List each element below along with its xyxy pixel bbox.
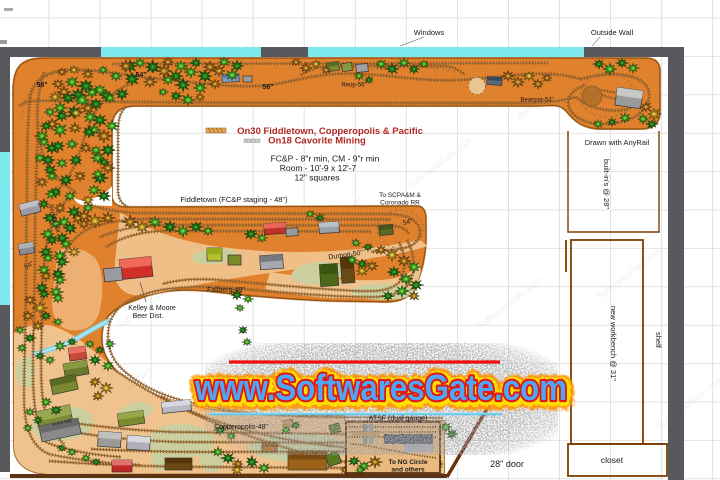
svg-text:On18 Cavorite Mining: On18 Cavorite Mining bbox=[268, 136, 366, 147]
svg-text:Kelley & Moore: Kelley & Moore bbox=[128, 305, 176, 312]
svg-text:Fallberg-48": Fallberg-48" bbox=[207, 287, 245, 294]
svg-text:Beer Dist.: Beer Dist. bbox=[133, 313, 164, 320]
svg-text:Reop-56": Reop-56" bbox=[341, 83, 366, 89]
svg-text:Outside Wall: Outside Wall bbox=[591, 28, 634, 37]
svg-text:To SCPA&M &: To SCPA&M & bbox=[379, 192, 421, 199]
svg-text:56": 56" bbox=[262, 84, 273, 91]
svg-text:shelf: shelf bbox=[654, 332, 663, 349]
svg-text:Coronado RR: Coronado RR bbox=[380, 200, 420, 207]
svg-text:54": 54" bbox=[135, 72, 146, 79]
svg-text:Beanpot-54": Beanpot-54" bbox=[520, 98, 553, 104]
svg-text:ATSF (dual gauge): ATSF (dual gauge) bbox=[369, 416, 428, 423]
svg-text:www.SoftwaresGate.com: www.SoftwaresGate.com bbox=[194, 367, 567, 408]
svg-text:Fiddletown (FC&P staging - 48": Fiddletown (FC&P staging - 48") bbox=[180, 195, 288, 204]
svg-text:58": 58" bbox=[36, 82, 47, 89]
svg-text:FC&P - 8"r min, CM - 9"r min: FC&P - 8"r min, CM - 9"r min bbox=[271, 154, 380, 164]
svg-text:Room - 10'-9 x 12'-7: Room - 10'-9 x 12'-7 bbox=[280, 163, 357, 173]
svg-text:Windows: Windows bbox=[414, 28, 445, 37]
svg-text:Copperopolis-48": Copperopolis-48" bbox=[214, 424, 268, 431]
svg-text:Drawn with AnyRail: Drawn with AnyRail bbox=[585, 138, 650, 147]
svg-text:12" squares: 12" squares bbox=[294, 173, 339, 183]
svg-text:built-in's @ 28": built-in's @ 28" bbox=[602, 159, 611, 209]
svg-text:To NG Circle: To NG Circle bbox=[389, 459, 428, 466]
svg-text:28" door: 28" door bbox=[490, 459, 524, 469]
svg-text:closet: closet bbox=[601, 455, 624, 465]
svg-text:and others: and others bbox=[391, 467, 425, 474]
svg-text:new workbench @ 31": new workbench @ 31" bbox=[609, 306, 618, 381]
